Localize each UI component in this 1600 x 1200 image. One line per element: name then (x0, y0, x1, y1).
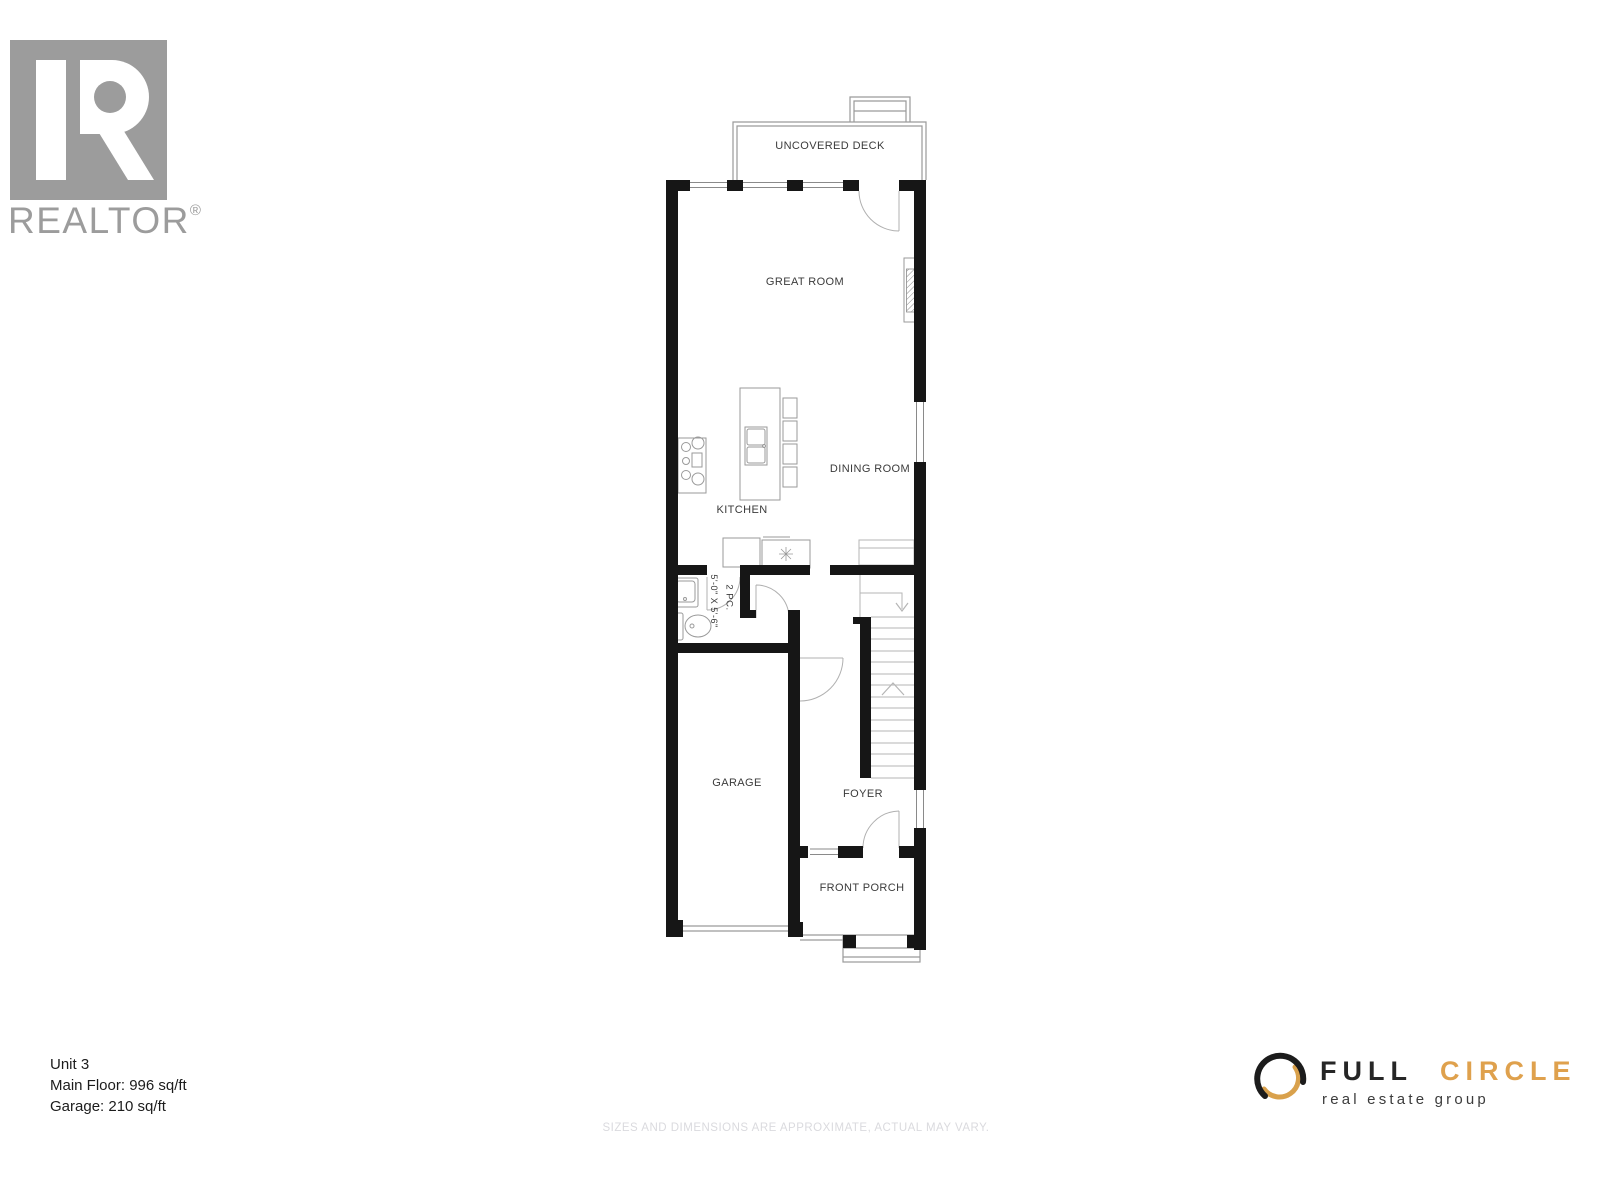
unit-info: Unit 3 Main Floor: 996 sq/ft Garage: 210… (50, 1054, 187, 1117)
registered-mark: ® (190, 202, 203, 219)
room-label-kitchen: KITCHEN (662, 504, 822, 516)
deck-outline (733, 97, 926, 180)
unit-number: Unit 3 (50, 1054, 187, 1075)
full-circle-word2: CIRCLE (1440, 1056, 1577, 1086)
room-label-foyer: FOYER (783, 788, 943, 800)
main-floor-area: Main Floor: 996 sq/ft (50, 1075, 187, 1096)
floor-plan-drawing (640, 85, 940, 965)
full-circle-word1: FULL (1320, 1056, 1413, 1086)
disclaimer-text: SIZES AND DIMENSIONS ARE APPROXIMATE, AC… (596, 1122, 996, 1134)
top-wall-windows (690, 183, 843, 188)
garage-area: Garage: 210 sq/ft (50, 1096, 187, 1117)
walls (666, 180, 926, 950)
room-label-great-room: GREAT ROOM (725, 276, 885, 288)
room-label-uncovered-deck: UNCOVERED DECK (750, 140, 910, 152)
full-circle-logo (1251, 1049, 1309, 1107)
full-circle-ring-icon (1251, 1049, 1309, 1107)
room-label-powder-room: 2 PC. (724, 548, 735, 648)
front-wall-window (810, 849, 838, 855)
room-label-powder-dims: 5'-0" X 5'-6" (709, 551, 719, 651)
realtor-wordmark-text: REALTOR (8, 200, 190, 241)
kitchen-island (740, 388, 797, 500)
stove (678, 437, 706, 493)
room-label-dining-room: DINING ROOM (790, 463, 950, 475)
realtor-wordmark: REALTOR® (8, 200, 202, 242)
kitchen-counter (723, 537, 810, 568)
realtor-logo (10, 40, 167, 200)
realtor-r-icon (10, 40, 167, 200)
full-circle-wordmark: FULL CIRCLE (1320, 1056, 1577, 1087)
full-circle-tagline: real estate group (1322, 1091, 1489, 1108)
porch-steps (800, 935, 920, 962)
room-label-front-porch: FRONT PORCH (782, 882, 942, 894)
garage-door (683, 926, 788, 931)
